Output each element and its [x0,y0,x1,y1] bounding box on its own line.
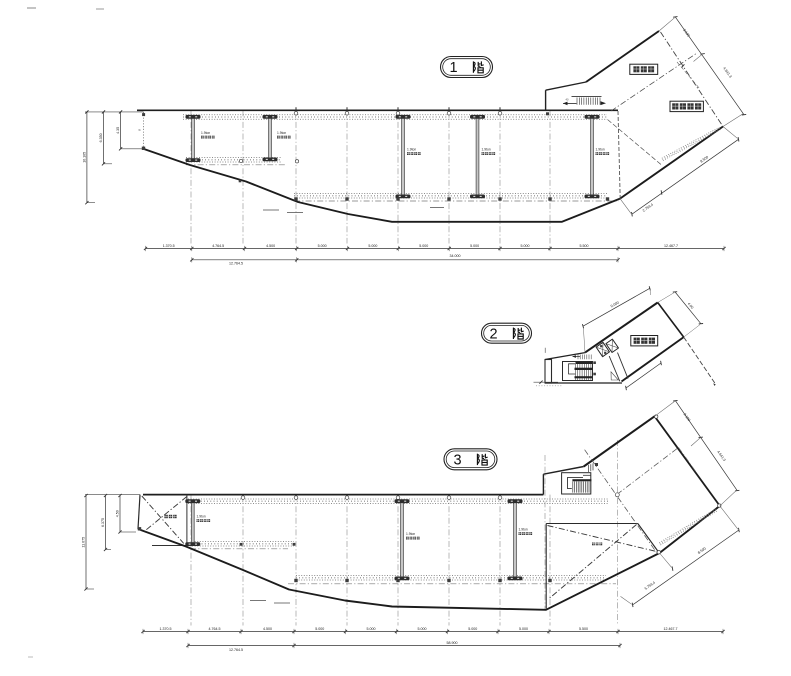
svg-text:12.467.7: 12.467.7 [664,244,678,248]
svg-text:5.000: 5.000 [318,244,327,248]
svg-text:4.500: 4.500 [266,244,275,248]
svg-text:11.675: 11.675 [82,537,86,548]
svg-text:3: 3 [453,453,461,469]
svg-text:2: 2 [489,326,497,342]
svg-text:4.35: 4.35 [116,127,120,134]
svg-text:1.9ton: 1.9ton [407,148,416,152]
svg-text:5.000: 5.000 [368,244,377,248]
svg-text:12.764.5: 12.764.5 [229,262,243,266]
svg-text:1.9ton: 1.9ton [197,515,206,519]
svg-text:5.000: 5.000 [419,244,428,248]
svg-text:6.375: 6.375 [101,518,105,527]
svg-text:1.9ton: 1.9ton [519,528,528,532]
svg-text:1.9ton: 1.9ton [277,131,286,135]
svg-text:34.000: 34.000 [450,254,461,258]
svg-text:5.500: 5.500 [580,244,589,248]
svg-text:5.000: 5.000 [470,244,479,248]
svg-text:4.500: 4.500 [263,627,272,631]
svg-text:4.764.5: 4.764.5 [209,627,221,631]
svg-text:5.000: 5.000 [519,627,528,631]
svg-text:5.000: 5.000 [521,244,530,248]
svg-text:5.000: 5.000 [468,627,477,631]
svg-text:1.9ton: 1.9ton [406,532,415,536]
svg-text:1.9ton: 1.9ton [482,148,491,152]
svg-text:58.900: 58.900 [447,641,458,645]
svg-text:6.350: 6.350 [99,133,103,142]
svg-text:5.000: 5.000 [315,627,324,631]
svg-text:1.370.5: 1.370.5 [163,244,175,248]
svg-text:12.764.5: 12.764.5 [229,648,243,652]
svg-text:1.9ton: 1.9ton [596,148,605,152]
svg-text:10.105: 10.105 [82,152,86,163]
svg-text:4.50: 4.50 [116,510,120,517]
svg-text:1: 1 [449,60,457,76]
svg-text:5.000: 5.000 [418,627,427,631]
svg-text:5.000: 5.000 [367,627,376,631]
svg-text:1.9ton: 1.9ton [201,131,210,135]
svg-text:5.500: 5.500 [579,627,588,631]
svg-text:1.370.5: 1.370.5 [160,627,172,631]
svg-text:12.467.7: 12.467.7 [664,627,678,631]
svg-text:4.764.5: 4.764.5 [212,244,224,248]
